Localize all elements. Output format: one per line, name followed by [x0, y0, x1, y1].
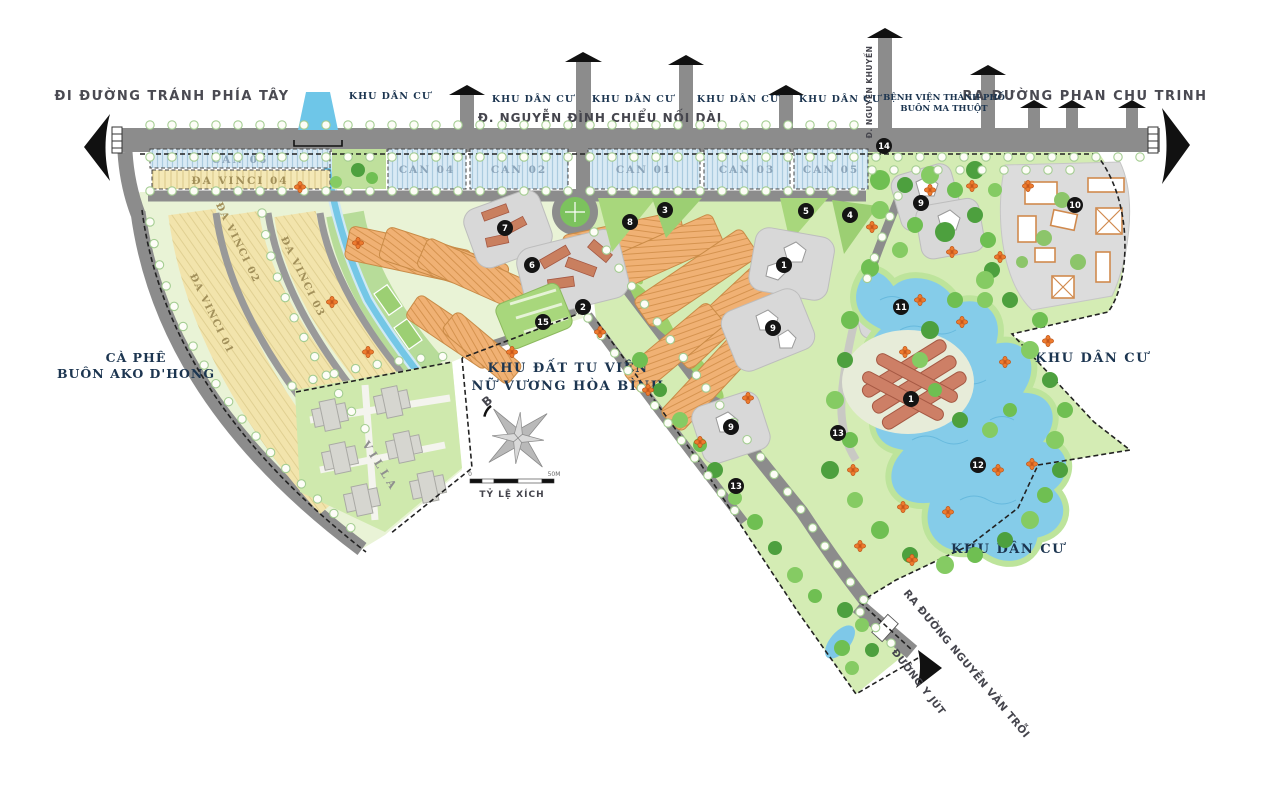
parcel-label-can05: CAN 05: [803, 164, 859, 176]
hospital-label-2: BUÔN MA THUỘT: [900, 102, 988, 114]
east-exit-arrow: [1162, 108, 1190, 184]
master-plan-canvas: VILLA: [0, 0, 1273, 800]
scale-tick-0: 0: [468, 471, 472, 478]
svg-text:12: 12: [972, 461, 984, 471]
convent-label-2: NỮ VƯƠNG HÒA BÌNH: [472, 377, 665, 394]
parcel-label-can01: CAN 01: [616, 164, 672, 176]
svg-text:14: 14: [878, 142, 890, 152]
map-marker: 4: [842, 207, 858, 223]
svg-text:10: 10: [1069, 201, 1081, 211]
scale-label: TỶ LỆ XÍCH: [479, 488, 544, 500]
map-marker: 13: [728, 478, 744, 494]
svg-text:15: 15: [537, 318, 549, 328]
svg-text:9: 9: [728, 423, 734, 433]
map-marker: 11: [893, 299, 909, 315]
parcel-label-can04: CAN 04: [399, 164, 455, 176]
west-exit-arrow: [84, 114, 110, 181]
map-marker: 10: [1067, 197, 1083, 213]
compass-north-label: B: [479, 393, 495, 410]
coffee-label-1: CÀ PHÊ: [106, 350, 167, 365]
map-marker: 9: [765, 320, 781, 336]
main-road: [118, 128, 1160, 152]
map-marker: 1: [776, 257, 792, 273]
road-nguyen-khuyen-label: Đ. NGUYỄN KHUYẾN: [864, 46, 874, 139]
map-marker: 15: [535, 314, 551, 330]
road-yjut-label: ĐƯỜNG Y JÚT: [889, 646, 949, 717]
coffee-label-2: BUÔN AKO D'HONG: [57, 365, 215, 381]
scale-bar: 0 50M TỶ LỆ XÍCH: [468, 471, 560, 500]
main-road-label: Đ. NGUYỄN ĐÌNH CHIỂU NỐI DÀI: [478, 108, 722, 125]
svg-text:13: 13: [730, 482, 742, 492]
map-marker: 3: [657, 202, 673, 218]
svg-text:8: 8: [627, 218, 633, 228]
map-marker: 2: [575, 299, 591, 315]
svg-text:7: 7: [502, 224, 508, 234]
svg-text:4: 4: [847, 211, 853, 221]
svg-text:2: 2: [580, 303, 586, 313]
svg-text:5: 5: [803, 207, 809, 217]
svg-text:1: 1: [908, 395, 914, 405]
parcel-label-can02: CAN 02: [491, 164, 547, 176]
svg-text:3: 3: [662, 206, 668, 216]
map-marker: 12: [970, 457, 986, 473]
svg-text:11: 11: [895, 303, 907, 313]
resort-compound: [1000, 162, 1129, 310]
residential-label: KHU DÂN CƯ: [492, 93, 575, 105]
residential-label: KHU DÂN CƯ: [697, 93, 780, 105]
residential-label: KHU DÂN CƯ: [799, 93, 882, 105]
master-plan-map: VILLA: [0, 0, 1273, 800]
map-marker: 9: [723, 419, 739, 435]
svg-text:13: 13: [832, 429, 844, 439]
svg-text:9: 9: [918, 199, 924, 209]
map-marker: 1: [903, 391, 919, 407]
map-marker: 9: [913, 195, 929, 211]
parcel-label-dv04: ĐA VINCI 04: [191, 175, 288, 187]
svg-text:9: 9: [770, 324, 776, 334]
map-marker: 6: [524, 257, 540, 273]
map-marker: 13: [830, 425, 846, 441]
map-marker: 8: [622, 214, 638, 230]
scale-tick-end: 50M: [548, 471, 561, 478]
map-marker: 14: [876, 138, 892, 154]
residential-label: KHU DÂN CƯ: [592, 93, 675, 105]
residential-label: KHU DÂN CƯ: [349, 90, 432, 102]
svg-text:1: 1: [781, 261, 787, 271]
map-marker: 7: [497, 220, 513, 236]
parcel-label-can03: CAN 03: [719, 164, 775, 176]
svg-text:6: 6: [529, 261, 535, 271]
exit-west-label: ĐI ĐƯỜNG TRÁNH PHÍA TÂY: [54, 88, 289, 104]
map-marker: 5: [798, 203, 814, 219]
residential-label: KHU DÂN CƯ: [1035, 350, 1150, 366]
